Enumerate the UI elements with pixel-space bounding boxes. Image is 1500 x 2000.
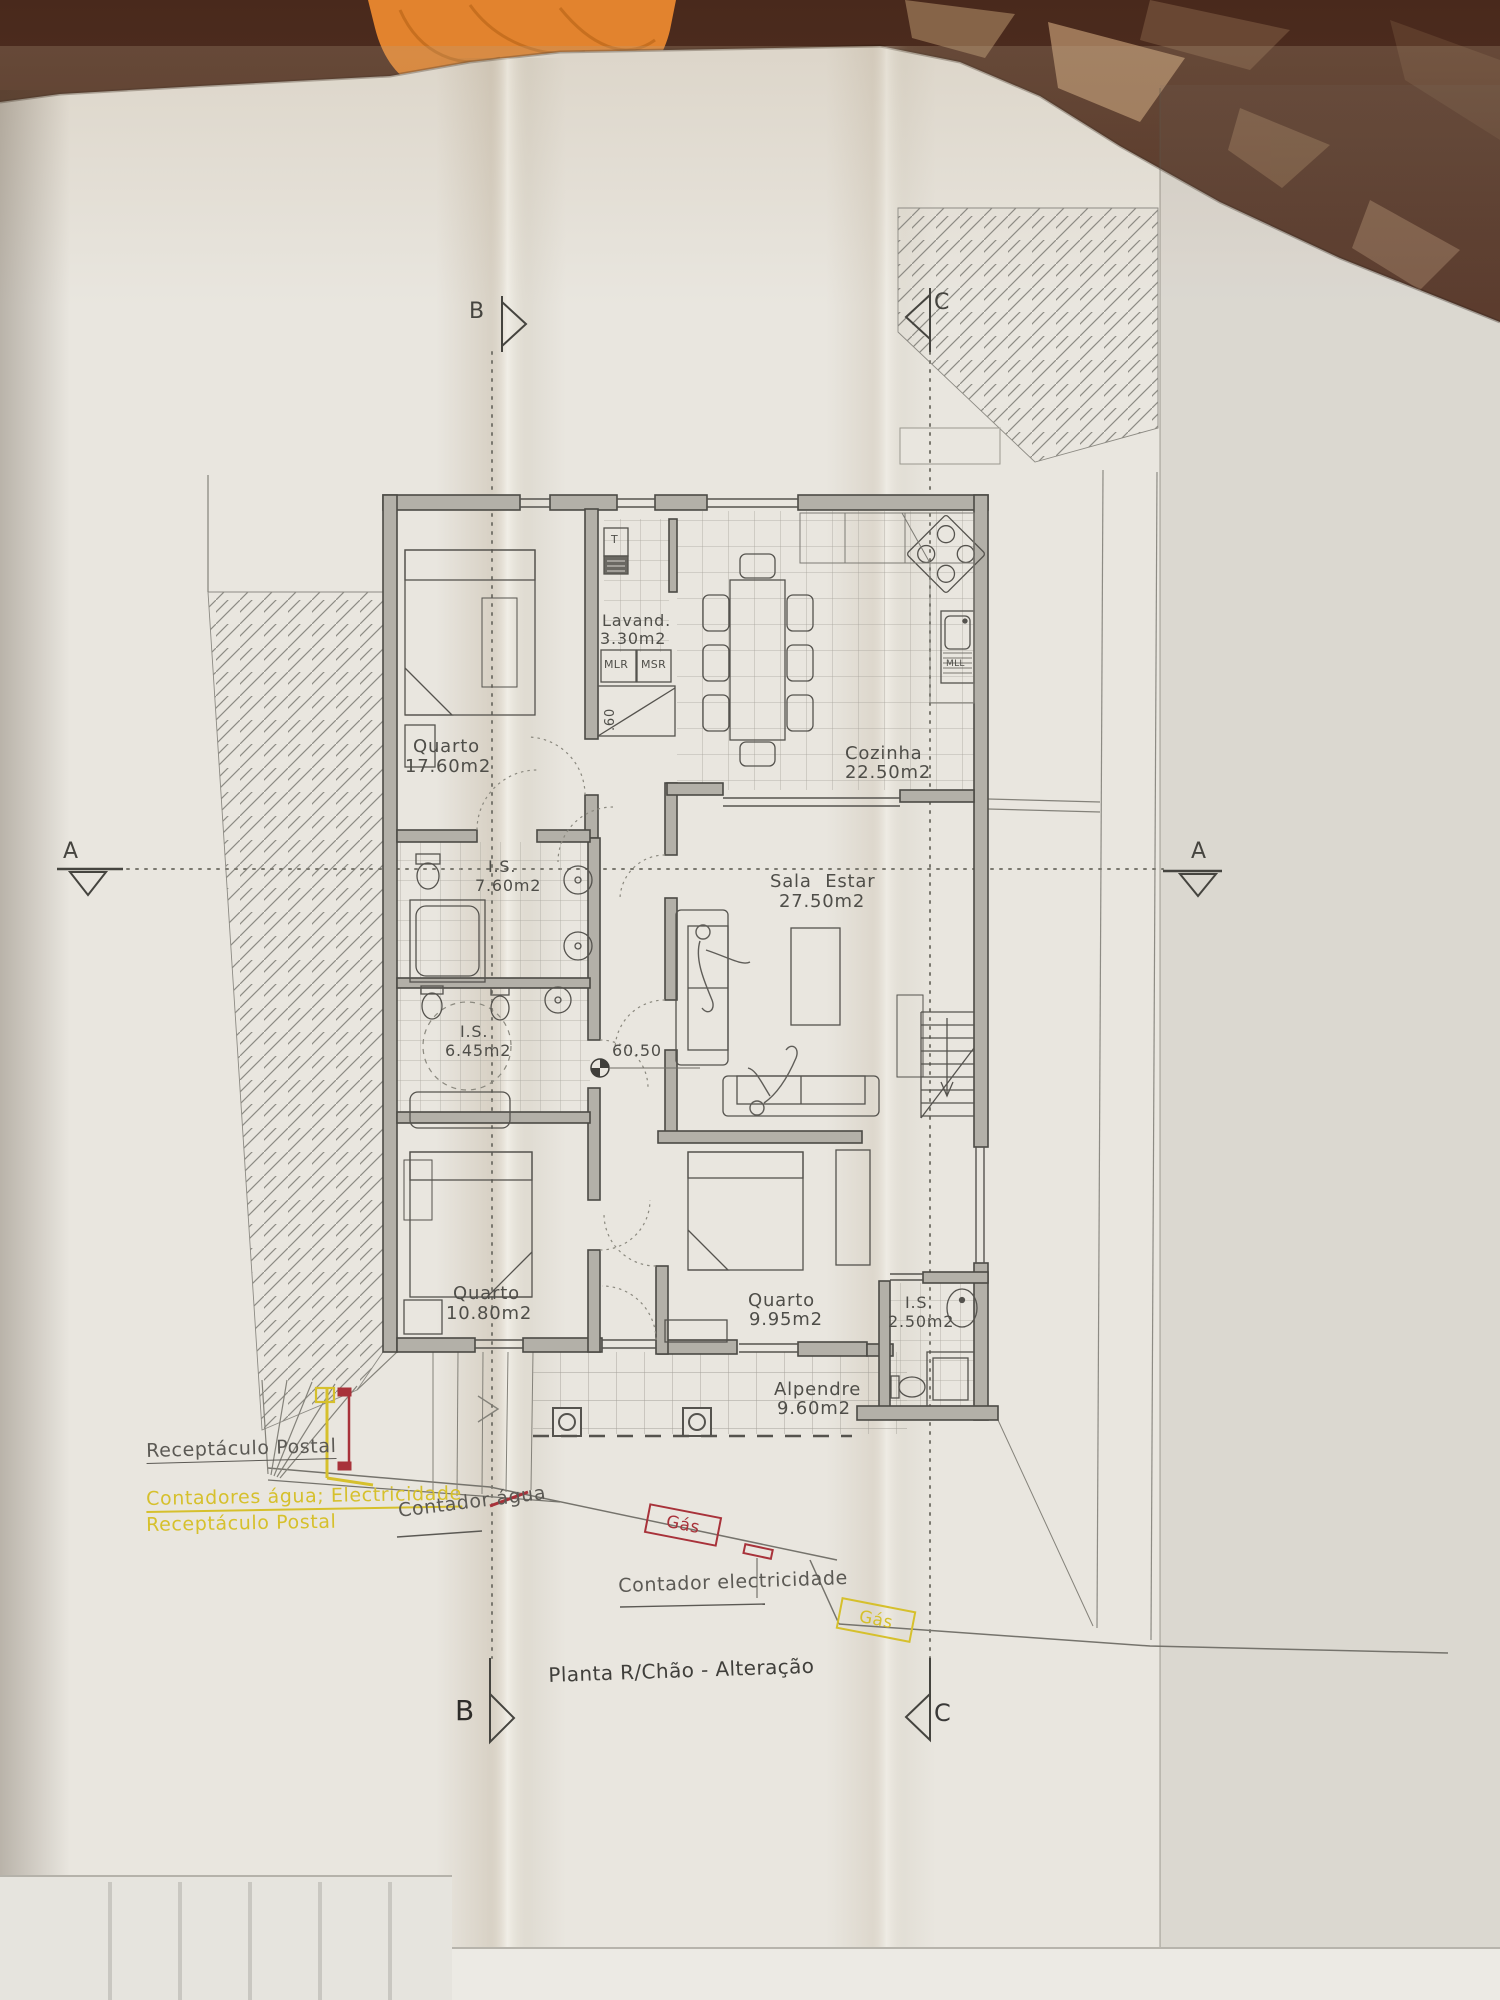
annotation-receptaculo-postal-yellow: Receptáculo Postal xyxy=(146,1512,337,1536)
water-heater-label: T xyxy=(611,534,618,546)
floor-plan-drawing xyxy=(0,0,1500,2000)
washer-label: MLR xyxy=(604,659,628,671)
room-label-is3-name: I.S. xyxy=(905,1294,933,1312)
step-height-label: .60 xyxy=(604,708,618,731)
sink-label: MLL xyxy=(946,660,965,670)
room-label-quarto1-name: Quarto xyxy=(413,737,480,757)
room-label-is1-area: 7.60m2 xyxy=(475,877,541,895)
photo-of-floor-plan: Quarto 17.60m2 Lavand. 3.30m2 Cozinha 22… xyxy=(0,0,1500,2000)
room-label-quarto3-area: 9.95m2 xyxy=(749,1310,823,1330)
room-label-alpendre-area: 9.60m2 xyxy=(777,1399,851,1419)
section-letter-c-top: C xyxy=(934,291,949,315)
room-label-is2-name: I.S. xyxy=(460,1023,488,1041)
room-label-quarto1-area: 17.60m2 xyxy=(405,757,491,777)
room-label-cozinha-area: 22.50m2 xyxy=(845,763,931,783)
room-label-sala-name: Sala Estar xyxy=(770,872,875,892)
room-label-cozinha-name: Cozinha xyxy=(845,744,922,764)
room-label-lavand-area: 3.30m2 xyxy=(600,630,666,648)
room-label-lavand-name: Lavand. xyxy=(602,612,671,630)
room-label-is3-area: 2.50m2 xyxy=(888,1313,954,1331)
room-label-quarto2-name: Quarto xyxy=(453,1284,520,1304)
right-sheet-shade xyxy=(1160,85,1500,2000)
room-label-sala-area: 27.50m2 xyxy=(779,892,865,912)
section-letter-b-bottom: B xyxy=(455,1696,474,1727)
room-label-quarto2-area: 10.80m2 xyxy=(446,1304,532,1324)
kitchen-floor xyxy=(677,511,974,790)
room-label-is2-area: 6.45m2 xyxy=(445,1042,511,1060)
room-label-quarto3-name: Quarto xyxy=(748,1291,815,1311)
section-letter-b-top: B xyxy=(469,300,484,324)
section-letter-c-bottom: C xyxy=(934,1700,951,1726)
room-label-is1-name: I.S. xyxy=(488,858,516,876)
level-label: 60.50 xyxy=(612,1042,662,1060)
section-letter-a-left: A xyxy=(63,840,78,864)
section-letter-a-right: A xyxy=(1191,840,1206,864)
room-label-alpendre-name: Alpendre xyxy=(774,1380,861,1400)
dryer-label: MSR xyxy=(641,659,666,671)
paper-sheet xyxy=(0,46,1500,2000)
